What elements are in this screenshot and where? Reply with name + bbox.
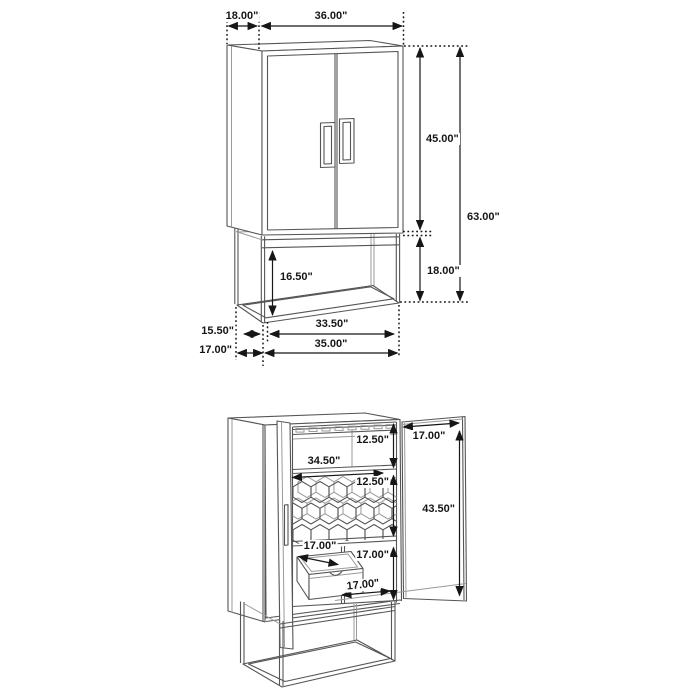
- dim-top-depth: 18.00": [225, 10, 260, 22]
- dim-door-height: 45.00": [425, 133, 460, 145]
- dim-shelf-width: 34.50": [307, 455, 342, 467]
- dim-base-depth-outer: 17.00": [198, 344, 233, 356]
- dim-base-depth-inner: 15.50": [200, 325, 235, 337]
- dim-base-width-inner: 33.50": [315, 318, 350, 330]
- dim-open-door-height: 43.50": [421, 503, 456, 515]
- open-left-door: [277, 421, 293, 649]
- right-door-handle: [340, 119, 355, 164]
- closed-view-drawing: [227, 12, 470, 366]
- dim-base-inner-height: 16.50": [279, 271, 314, 283]
- closed-base-frame: [235, 227, 400, 323]
- closed-cabinet-body: [227, 41, 403, 236]
- left-door-handle-open: [285, 505, 289, 546]
- open-view-drawing: [228, 413, 467, 687]
- cabinet-side-panel: [227, 45, 262, 235]
- left-door-handle: [321, 123, 336, 168]
- dimension-diagram: 18.00" 36.00" 45.00" 63.00" 18.00" 16.50…: [0, 0, 700, 700]
- dim-open-door-width: 17.00": [412, 430, 447, 442]
- dim-top-shelf-height: 12.50": [355, 434, 390, 446]
- dim-wine-rack-height: 12.50": [355, 476, 390, 488]
- dim-total-height: 63.00": [466, 211, 501, 223]
- dim-lower-cabinet-height: 17.00": [355, 549, 390, 561]
- dim-drawer-depth: 17.00": [303, 540, 338, 552]
- dim-base-height: 18.00": [426, 265, 461, 277]
- dim-top-width: 36.00": [314, 10, 349, 22]
- dim-base-width-outer: 35.00": [314, 338, 349, 350]
- open-cabinet-side-panel: [228, 418, 265, 622]
- line-art: [0, 0, 700, 700]
